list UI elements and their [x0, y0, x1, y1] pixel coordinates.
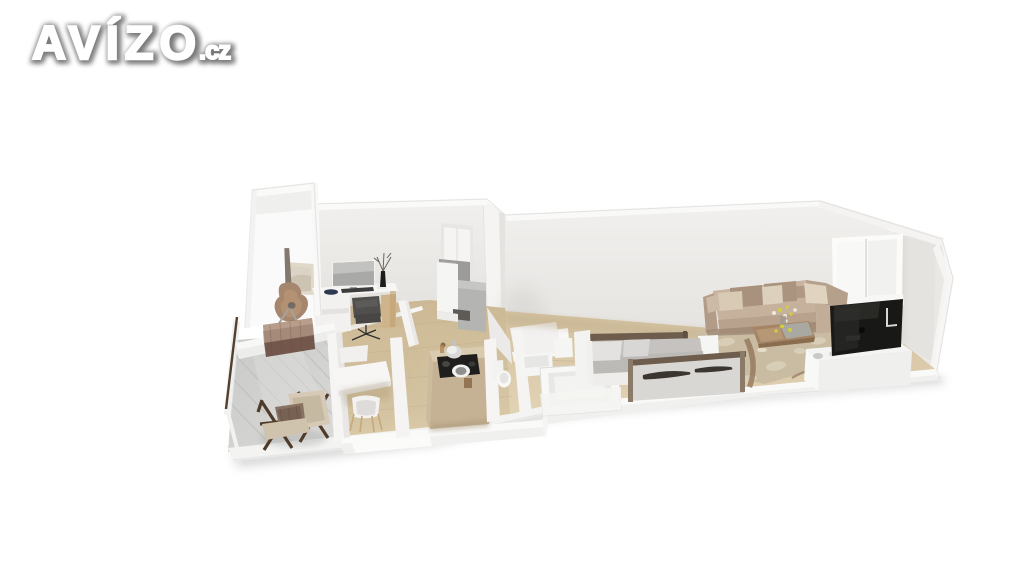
svg-text:.cz: .cz	[199, 37, 231, 65]
svg-text:AVÍZO: AVÍZO	[32, 16, 198, 69]
